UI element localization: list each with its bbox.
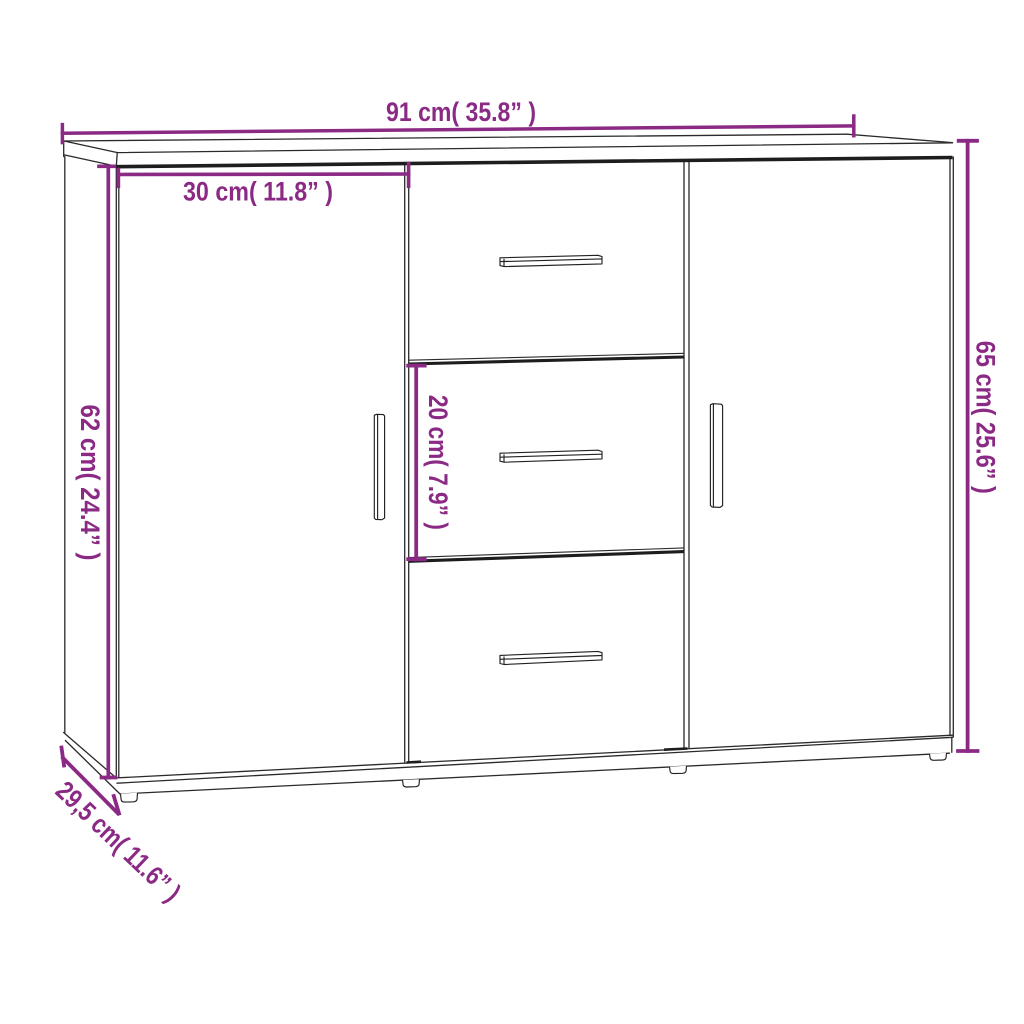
svg-text:30 cm( 11.8” ): 30 cm( 11.8” ) — [183, 177, 333, 207]
svg-text:65 cm( 25.6” ): 65 cm( 25.6” ) — [971, 341, 1001, 494]
svg-text:62 cm( 24.4” ): 62 cm( 24.4” ) — [75, 405, 105, 561]
svg-text:20 cm( 7.9” ): 20 cm( 7.9” ) — [423, 395, 453, 530]
svg-text:91 cm( 35.8” ): 91 cm( 35.8” ) — [386, 97, 536, 127]
